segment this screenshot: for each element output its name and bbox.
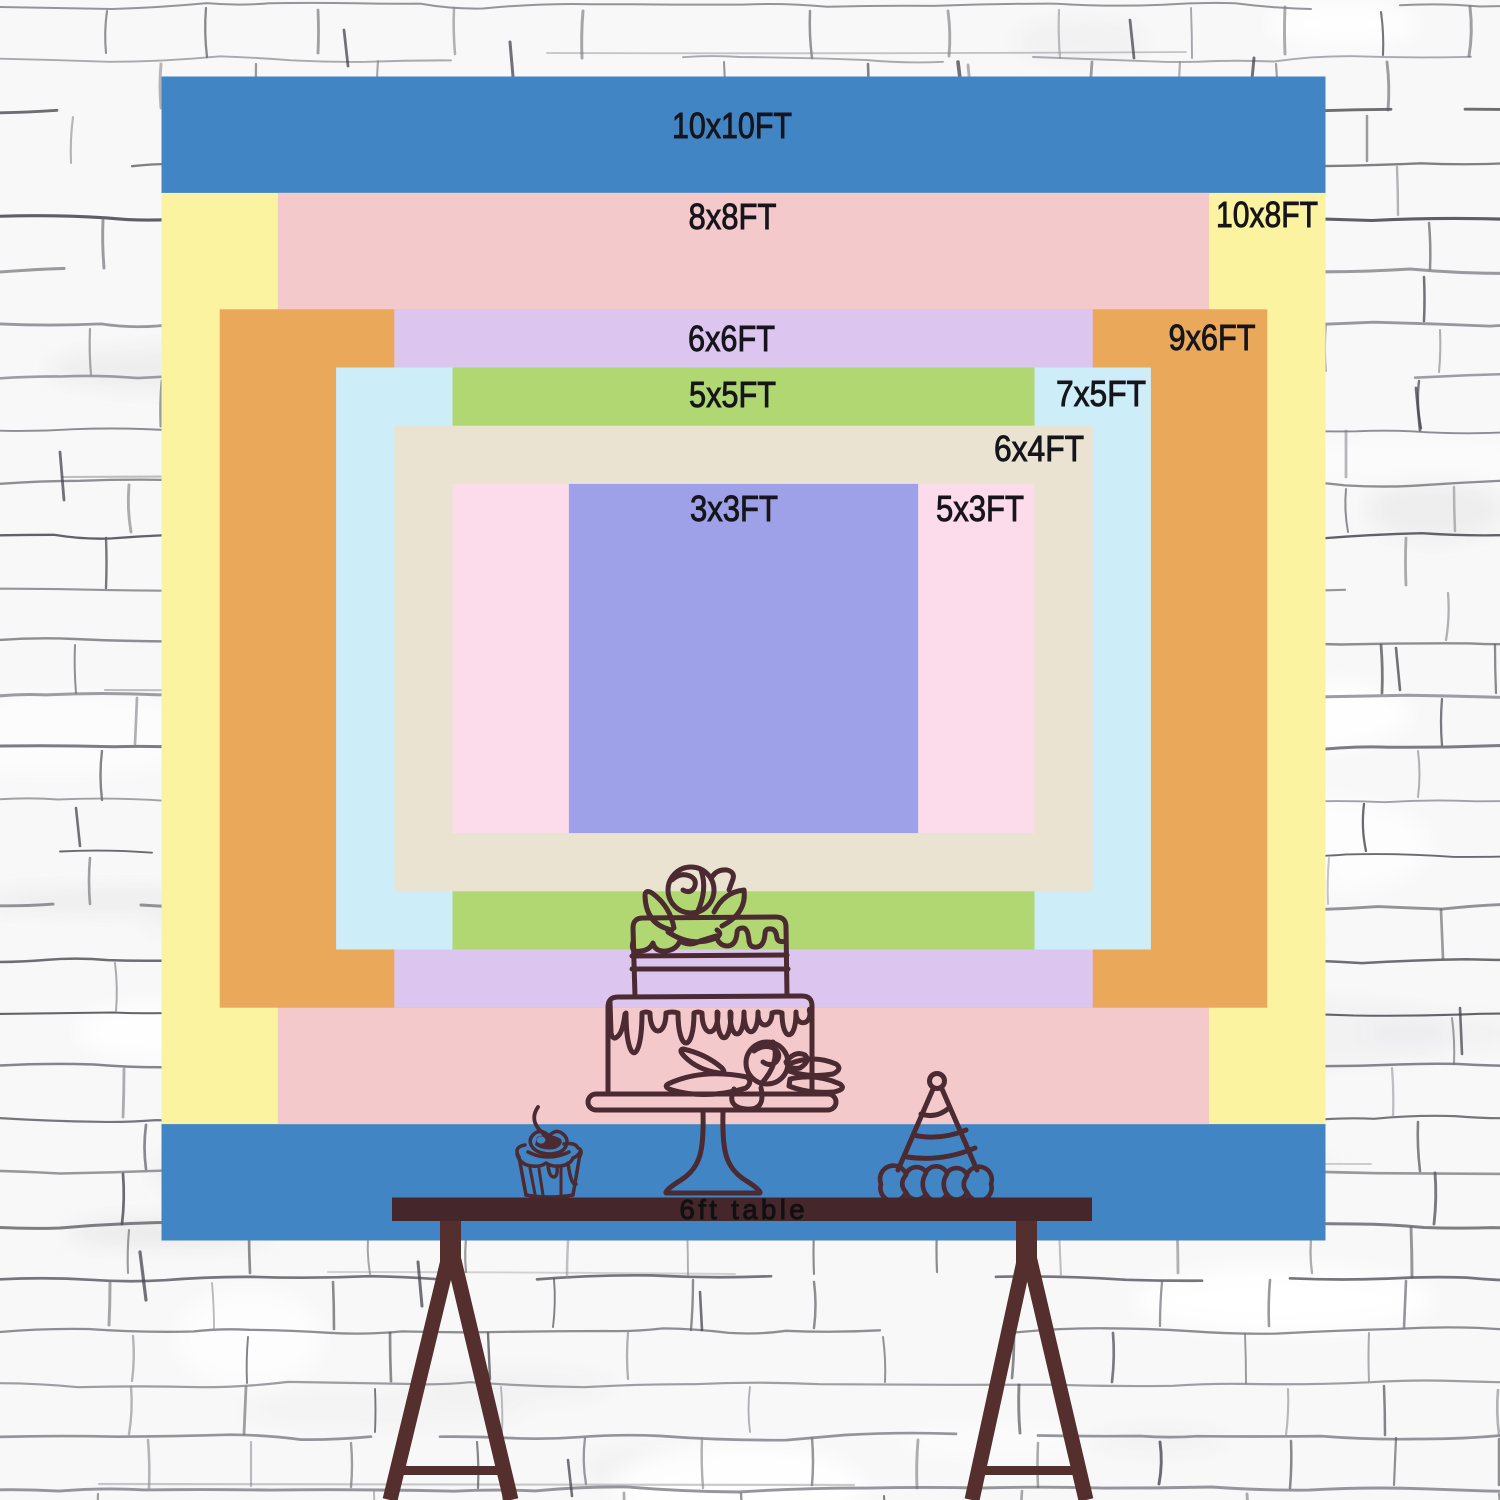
svg-text:9x6FT: 9x6FT (1169, 317, 1256, 358)
svg-text:6x6FT: 6x6FT (688, 318, 775, 359)
svg-text:8x8FT: 8x8FT (689, 196, 777, 237)
svg-text:5x3FT: 5x3FT (936, 488, 1024, 529)
svg-text:3x3FT: 3x3FT (690, 488, 778, 529)
svg-text:7x5FT: 7x5FT (1056, 373, 1146, 414)
svg-text:5x5FT: 5x5FT (689, 374, 776, 415)
svg-text:6ft table: 6ft table (680, 1194, 805, 1225)
svg-text:10x10FT: 10x10FT (672, 105, 792, 146)
svg-text:10x8FT: 10x8FT (1216, 194, 1318, 235)
svg-text:6x4FT: 6x4FT (994, 428, 1084, 469)
